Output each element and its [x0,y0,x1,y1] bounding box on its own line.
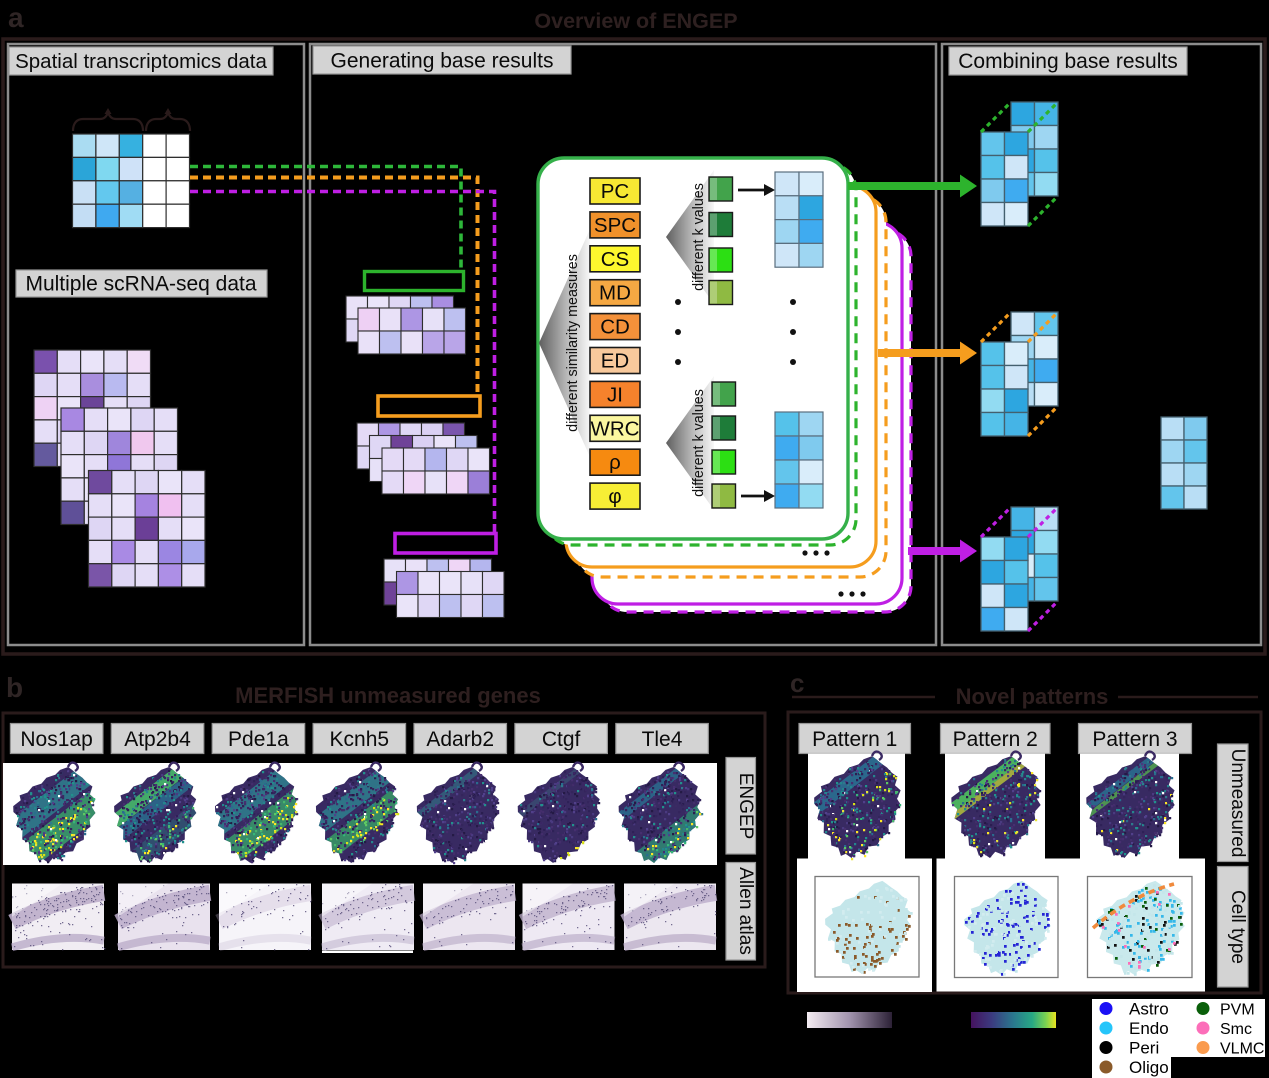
svg-text:CS: CS [601,248,629,271]
svg-text:JI: JI [607,383,623,406]
svg-text:Endo: Endo [1129,1019,1169,1038]
svg-text:ED: ED [601,350,629,373]
svg-text:Spatial transcriptomics data: Spatial transcriptomics data [15,50,267,73]
svg-text:Atp2b4: Atp2b4 [124,728,191,751]
svg-text:PVM: PVM [1220,1002,1255,1019]
svg-text:Allen atlas: Allen atlas [735,867,756,955]
svg-text:MD: MD [599,282,631,305]
svg-text:different similarity measures: different similarity measures [565,254,581,432]
svg-text:c: c [790,668,804,698]
svg-text:different k values: different k values [691,389,707,497]
svg-text:MERFISH unmeasured genes: MERFISH unmeasured genes [235,683,541,708]
svg-text:Pattern 1: Pattern 1 [812,728,897,751]
svg-text:Pde1a: Pde1a [228,728,289,751]
svg-text:Smc: Smc [1220,1021,1252,1038]
svg-text:Tle4: Tle4 [642,728,683,751]
svg-text:SPC: SPC [594,214,636,237]
svg-text:Pattern 2: Pattern 2 [953,728,1038,751]
svg-text:a: a [8,2,24,33]
svg-text:ENGEP: ENGEP [735,773,756,840]
svg-text:Overview of ENGEP: Overview of ENGEP [534,9,737,33]
svg-text:Astro: Astro [1129,1000,1169,1019]
svg-text:Generating base results: Generating base results [331,50,554,73]
svg-text:Peri: Peri [1129,1039,1159,1058]
svg-text:Ctgf: Ctgf [542,728,581,751]
svg-text:WRC: WRC [591,417,640,440]
svg-text:b: b [6,672,23,703]
svg-text:Unmeasured: Unmeasured [1227,749,1248,858]
svg-text:φ: φ [608,485,621,508]
svg-text:Oligo: Oligo [1129,1058,1169,1077]
svg-text:VLMC: VLMC [1220,1041,1264,1058]
svg-text:CD: CD [600,316,630,339]
svg-text:Adarb2: Adarb2 [426,728,494,751]
svg-text:Kcnh5: Kcnh5 [330,728,390,751]
svg-text:ρ: ρ [609,451,621,474]
svg-text:Cell type: Cell type [1227,890,1248,964]
svg-text:Combining base results: Combining base results [958,50,1177,73]
svg-text:Pattern 3: Pattern 3 [1092,728,1177,751]
svg-text:Multiple scRNA-seq data: Multiple scRNA-seq data [25,273,256,296]
svg-text:different k values: different k values [691,183,707,291]
svg-text:Nos1ap: Nos1ap [20,728,92,751]
svg-text:Novel patterns: Novel patterns [956,684,1109,709]
svg-text:PC: PC [601,180,630,203]
